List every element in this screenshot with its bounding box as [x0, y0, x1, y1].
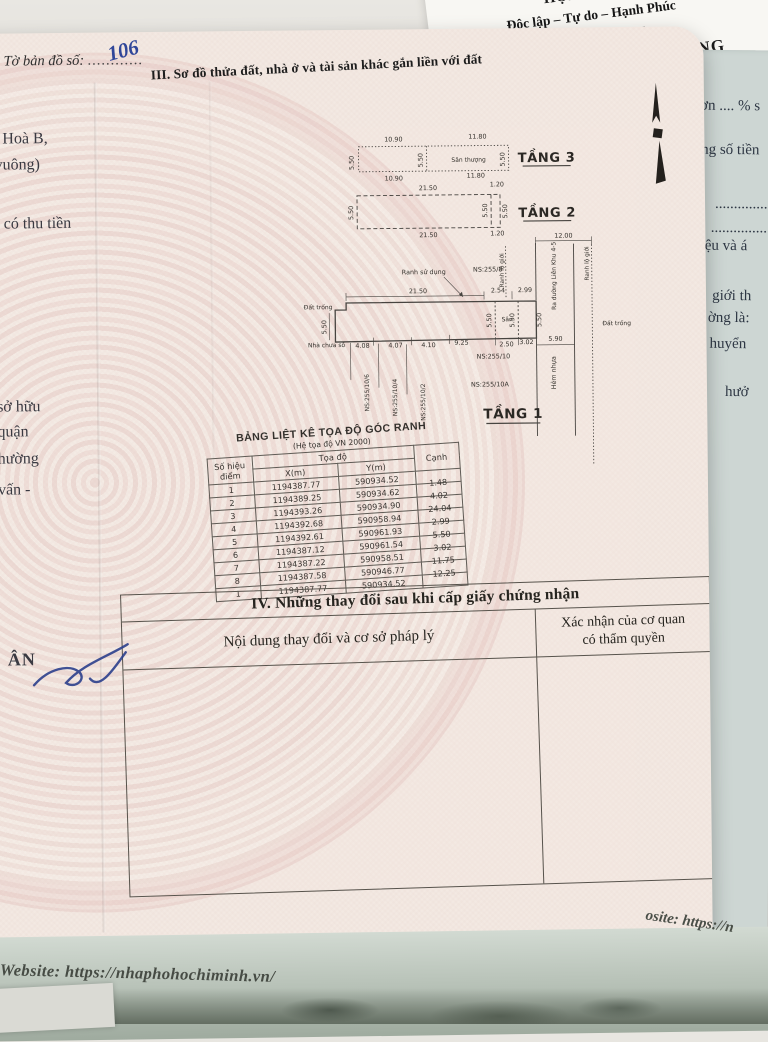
pen-signature-flourish	[30, 638, 151, 709]
sleeve-website-text: Website: https://nhaphohochiminh.vn/	[0, 960, 275, 987]
dim-label: 5.50	[485, 313, 493, 327]
dim-label: 10.90	[384, 135, 402, 143]
dim-label: 4.07	[388, 341, 402, 349]
dim-label: 9.25	[454, 339, 468, 347]
boundary-label: Ranh sử dụng	[402, 268, 446, 276]
house-label: Nhà chưa số	[308, 342, 346, 349]
certificate-page: Tờ bản đồ số: ............ 106 III. Sơ đ…	[0, 26, 713, 946]
dim-label: 5.50	[348, 156, 356, 170]
section4-table: IV. Những thay đổi sau khi cấp giấy chứn…	[120, 576, 713, 897]
dim-label: 11.80	[468, 132, 486, 140]
dim-label: 5.50	[481, 203, 489, 217]
parcel-label: NS:255/10A	[471, 380, 510, 388]
bottom-left-paper-corner	[0, 983, 115, 1033]
left-page-fragment: Hoà B,	[2, 130, 48, 148]
right-paper-fragment: iệu và á	[701, 238, 748, 255]
floor-plan-tang2: 21.50 1.20 21.50 1.20 5.50 5.50 5.50 TẦN…	[347, 180, 576, 240]
edge-value: 4.02	[430, 490, 449, 501]
column-header-point: Số hiệu điểm	[207, 456, 254, 485]
edge-value: 2.99	[431, 516, 450, 527]
floor-name: TẦNG 2	[518, 203, 576, 222]
dim-label: 4.08	[355, 342, 369, 350]
plastic-sleeve: Website: https://nhaphohochiminh.vn/ osi…	[0, 926, 768, 1041]
coordinate-table: Số hiệu điểm Tọa độ Cạnh X(m) Y(m) 11194…	[206, 442, 468, 602]
area-label: Đất trống	[304, 304, 333, 311]
edge-value: 1.48	[429, 477, 448, 488]
edge-value: 3.02	[433, 542, 452, 553]
dim-label: 10.90	[385, 174, 403, 182]
dim-label: 2.99	[518, 286, 532, 294]
left-page-fragment: vấn -	[0, 481, 31, 499]
floor-name: TẦNG 3	[518, 148, 576, 167]
dim-label: 5.50	[347, 206, 355, 220]
dim-label: 21.50	[419, 184, 437, 192]
photo-of-land-certificate: { "top_paper": { "line1": "HỘI CHỦ NG", …	[0, 0, 768, 1024]
right-paper-fragment: giới th	[712, 288, 751, 305]
dim-label: 21.50	[409, 287, 427, 295]
dim-label: 4.10	[421, 341, 435, 349]
dim-label: 21.50	[419, 231, 437, 239]
boundary-label: Ranh lộ giới	[499, 253, 506, 288]
left-page-fragment: sở hữu	[0, 398, 41, 416]
confirm-line: Xác nhận của cơ quan	[561, 611, 686, 632]
parcel-label: NS:255/8	[473, 265, 503, 273]
edge-value: 11.75	[431, 554, 455, 566]
right-paper-fragment: ờng là:	[708, 310, 750, 327]
right-paper-fragment: huyển	[710, 336, 747, 353]
right-paper-fragment: ..................	[715, 196, 768, 214]
dim-label: 5.50	[320, 320, 328, 334]
column-header-text: điểm	[220, 470, 241, 481]
section4-col-confirm: Xác nhận của cơ quan có thẩm quyền	[536, 604, 711, 656]
left-page-fragment: t có thu tiền	[0, 215, 71, 234]
left-page-fragment: vuông)	[0, 156, 40, 174]
dim-label: 5.50	[417, 153, 425, 167]
floor-name: TẦNG 1	[483, 403, 543, 423]
dim-label: 5.50	[535, 313, 543, 327]
dim-label: 12.00	[554, 232, 572, 240]
road-label: Ra đường Liên Khu 4-5	[550, 242, 558, 310]
road-label: Hẻm nhựa	[550, 356, 558, 389]
dim-label: 3.02	[519, 338, 533, 346]
boundary-label: Ranh lộ giới	[584, 246, 591, 281]
edge-value: 24.04	[428, 502, 452, 514]
edge-value: 5.50	[432, 529, 451, 540]
right-paper-fragment: hưở	[725, 384, 749, 401]
dim-label: 1.20	[490, 180, 504, 188]
room-label: Sân thượng	[451, 156, 486, 163]
edge-value: 12.25	[432, 567, 456, 579]
floor-plan-tang3: 10.90 11.80 10.90 11.80 5.50 5.50 5.50 S…	[347, 132, 575, 183]
dim-label: 1.20	[490, 229, 504, 237]
area-label: Đất trống	[602, 320, 631, 327]
dim-label: 5.50	[499, 152, 507, 166]
section4-body-confirm-cell	[537, 652, 713, 883]
dim-label: 5.50	[501, 204, 509, 218]
dim-label: 11.80	[467, 172, 485, 180]
map-sheet-label: Tờ bản đồ số:	[3, 53, 84, 70]
left-page-fragment: quận	[0, 423, 29, 441]
left-page-fragment: hường	[0, 450, 39, 468]
column-header-edge: Cạnh	[413, 442, 460, 471]
parcel-label: NS:255/10/6	[364, 374, 371, 412]
dim-label: 5.90	[548, 335, 562, 343]
parcel-label: NS:255/10	[477, 352, 511, 360]
confirm-line: có thẩm quyền	[582, 629, 665, 649]
fold-crease	[94, 83, 106, 933]
parcel-label: NS:255/10/4	[392, 379, 399, 417]
right-paper-fragment: ơn .... % s	[700, 98, 760, 116]
coordinate-table-block: BẢNG LIỆT KÊ TỌA ĐỘ GÓC RANH (Hệ tọa độ …	[203, 418, 470, 603]
dim-label: 2.50	[499, 340, 513, 348]
dim-label: 5.50	[508, 313, 516, 327]
section3-title: III. Sơ đồ thửa đất, nhà ở và tài sản kh…	[150, 48, 540, 83]
parcel-label: NS:255/10/2	[420, 383, 427, 421]
right-paper-fragment: ..................	[711, 220, 768, 238]
section4-body-content-cell	[123, 657, 544, 896]
section4-empty-body	[123, 652, 712, 896]
